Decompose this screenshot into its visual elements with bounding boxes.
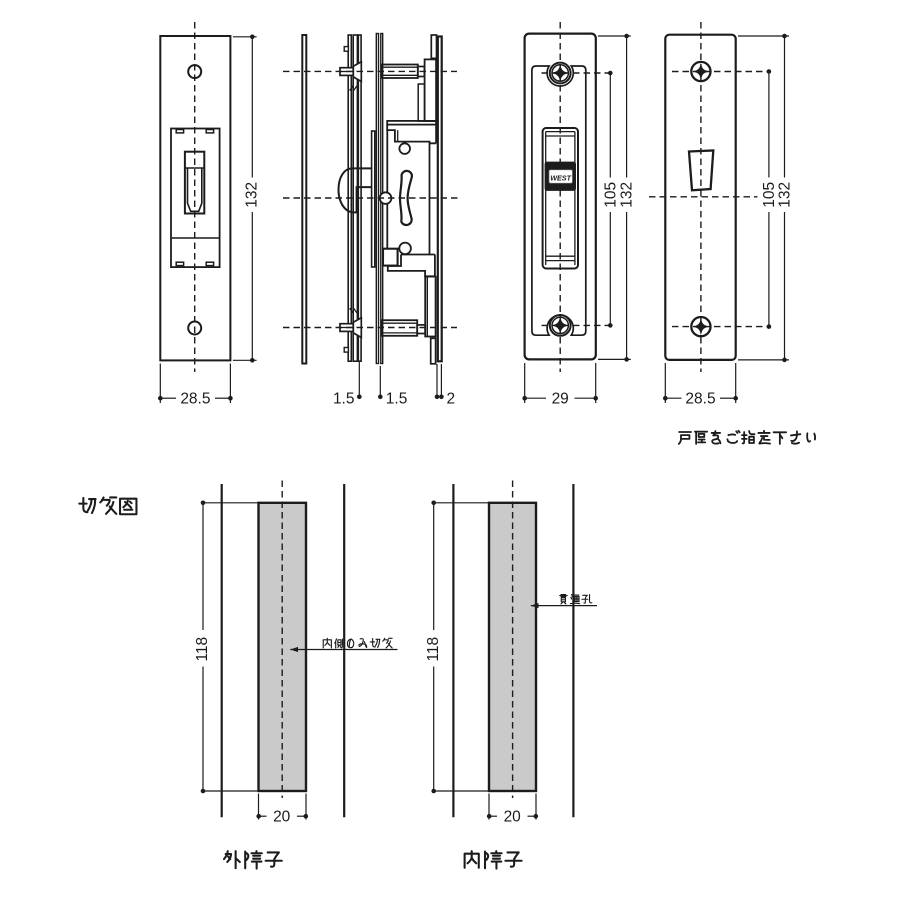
svg-text:20: 20: [504, 808, 522, 825]
svg-text:20: 20: [273, 808, 291, 825]
svg-text:1.5: 1.5: [386, 390, 408, 407]
svg-text:WEST: WEST: [550, 173, 571, 182]
svg-text:105: 105: [602, 182, 619, 208]
svg-text:118: 118: [194, 637, 211, 662]
svg-text:29: 29: [552, 390, 569, 407]
svg-text:1.5: 1.5: [333, 390, 355, 407]
svg-text:118: 118: [425, 637, 442, 662]
svg-text:28.5: 28.5: [685, 390, 715, 407]
svg-text:2: 2: [447, 390, 456, 407]
svg-text:132: 132: [244, 182, 261, 208]
svg-text:132: 132: [777, 182, 794, 208]
svg-text:28.5: 28.5: [180, 390, 210, 407]
svg-text:105: 105: [761, 182, 778, 208]
svg-text:132: 132: [619, 182, 636, 208]
